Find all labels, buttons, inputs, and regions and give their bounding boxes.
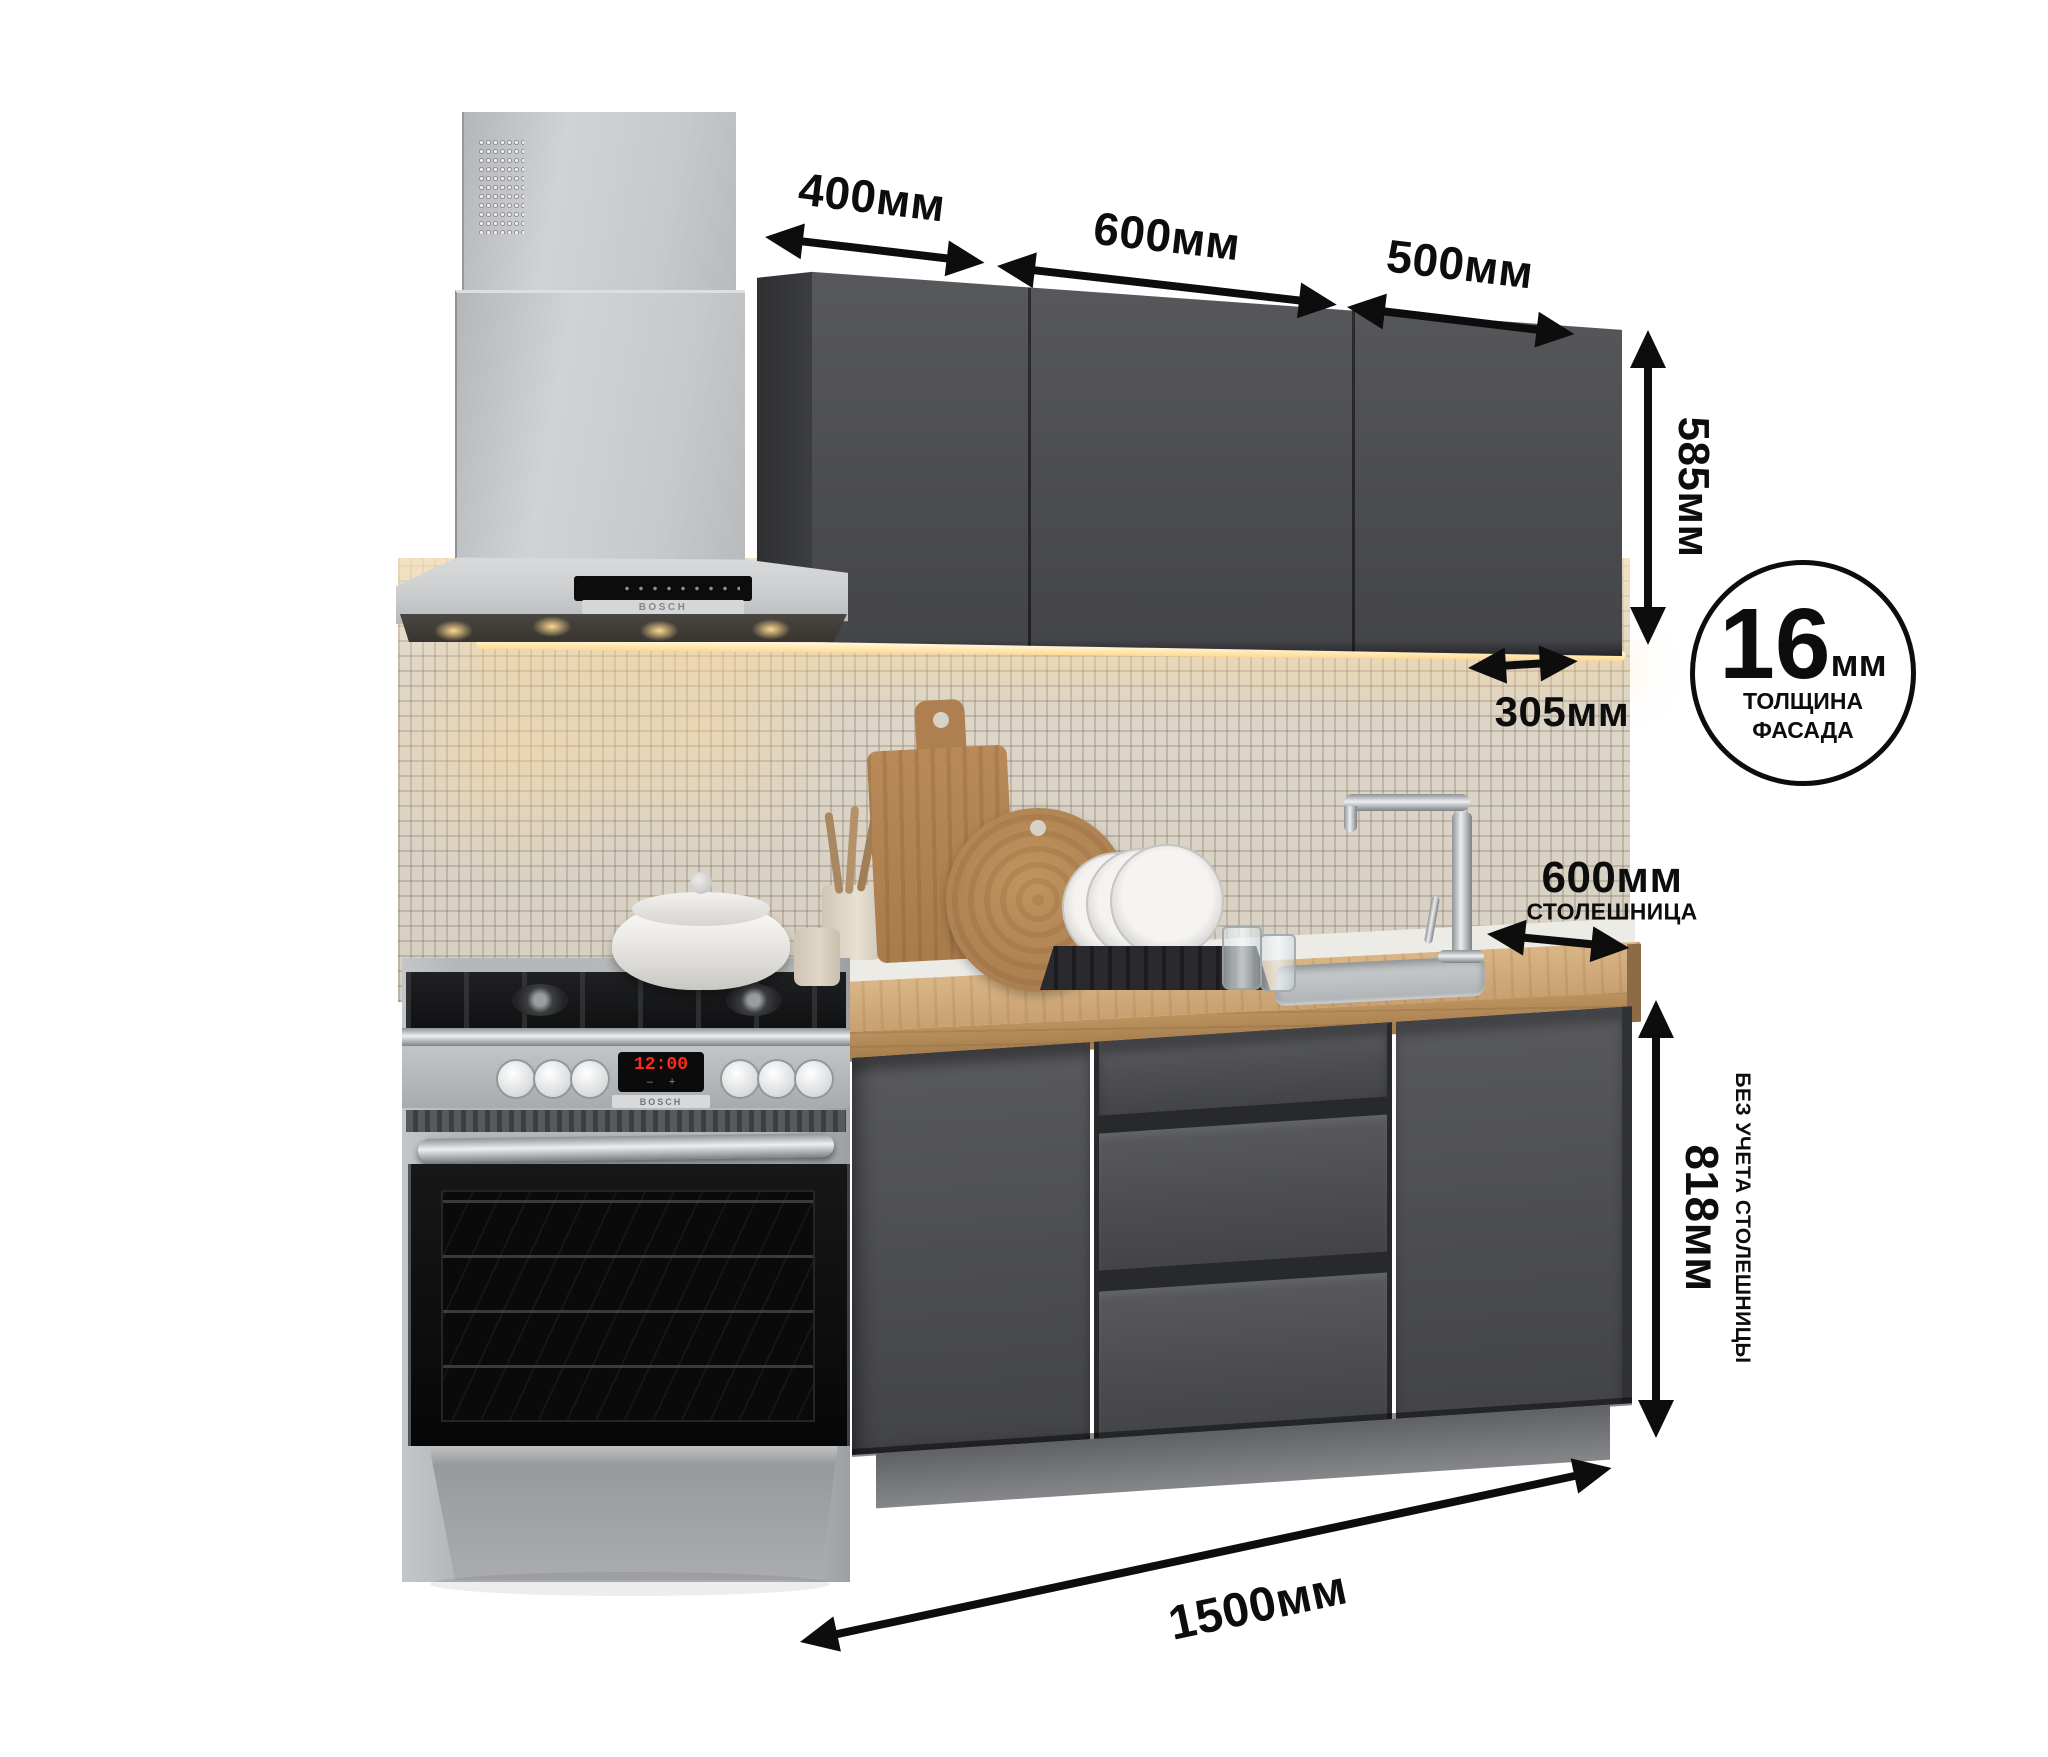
label-counter-depth-caption: СТОЛЕШНИЦА	[1527, 899, 1698, 926]
drawer-1	[1099, 1022, 1387, 1115]
facade-thickness-badge: 16 мм ТОЛЩИНА ФАСАДА	[1690, 560, 1916, 786]
stove-knob-6	[794, 1059, 834, 1099]
hood-chimney-lower	[455, 290, 745, 563]
label-base-height-818: 818мм	[1675, 1144, 1729, 1291]
round-board-hole	[1030, 820, 1046, 836]
stove-brand-label: BOSCH	[640, 1097, 683, 1107]
stove-display: 12:00 – +	[618, 1052, 704, 1092]
wall-door-seam-2	[1352, 266, 1355, 660]
faucet-spout-tip	[1344, 806, 1357, 832]
stove-brand-bar: BOSCH	[612, 1095, 710, 1108]
stove-knob-1	[496, 1059, 536, 1099]
badge-caption-line2: ФАСАДА	[1752, 716, 1854, 745]
drinking-glass-1	[1222, 926, 1262, 990]
label-counter-depth-600: 600мм	[1541, 853, 1682, 903]
hood-brand-label: BOSCH	[639, 602, 688, 613]
burner-left	[512, 984, 568, 1016]
drawer-3	[1099, 1272, 1387, 1438]
stove-minus-button: –	[647, 1077, 653, 1088]
hood-control-bar	[574, 576, 752, 601]
bowl-lid-knob	[690, 872, 712, 894]
hood-brand-bar: BOSCH	[582, 600, 744, 614]
bowl-lid	[632, 892, 770, 926]
base-door-right	[1396, 1007, 1622, 1419]
stove-knob-3	[570, 1059, 610, 1099]
hood-underside-filters	[400, 614, 847, 642]
badge-caption-line1: ТОЛЩИНА	[1743, 687, 1863, 716]
ceramic-cup	[794, 928, 840, 986]
label-wall-height-585: 585мм	[1668, 416, 1718, 557]
drawer-2	[1099, 1114, 1387, 1270]
faucet-base	[1438, 950, 1484, 963]
base-cabinets	[852, 948, 1632, 1560]
arrow-base-height-818	[1636, 1000, 1676, 1438]
badge-unit: мм	[1831, 648, 1887, 680]
badge-value: 16	[1719, 602, 1830, 687]
stove-base-drawer	[412, 1446, 842, 1580]
burner-right	[726, 984, 782, 1016]
oven-vent-strip	[406, 1110, 846, 1132]
stove-clock: 12:00	[634, 1056, 688, 1074]
label-total-width-1500: 1500мм	[1164, 1560, 1352, 1651]
base-door-left	[852, 1042, 1090, 1455]
hood-control-buttons	[620, 585, 740, 592]
base-side-right	[1622, 1006, 1632, 1404]
faucet-riser	[1452, 812, 1472, 962]
stove-plus-button: +	[669, 1077, 675, 1088]
label-wall-width-600: 600мм	[1091, 201, 1243, 271]
label-wall-width-400: 400мм	[796, 162, 949, 233]
label-wall-depth-305: 305мм	[1495, 688, 1630, 736]
oven-door	[408, 1164, 850, 1446]
stove-knob-4	[720, 1059, 760, 1099]
product-dimension-diagram: BOSCH	[0, 0, 2048, 1757]
faucet-spout-arm	[1344, 794, 1470, 811]
base-drawer-unit	[1094, 1022, 1392, 1439]
stove-knob-2	[533, 1059, 573, 1099]
hood-vent-grille	[478, 138, 524, 234]
floor-shadow	[430, 1572, 830, 1596]
oven-window	[441, 1190, 815, 1422]
stove-front-lip	[402, 1028, 850, 1046]
drinking-glass-2	[1260, 934, 1296, 992]
label-base-height-caption: БЕЗ УЧЕТА СТОЛЕШНИЦЫ	[1730, 1072, 1754, 1363]
plate-3	[1110, 844, 1224, 958]
wall-door-seam-1	[1028, 266, 1031, 660]
label-wall-width-500: 500мм	[1384, 228, 1537, 299]
arrow-wall-height-585	[1628, 330, 1668, 645]
stove-control-panel: 12:00 – + BOSCH	[402, 1046, 850, 1108]
cutting-board-handle-hole	[933, 712, 949, 728]
stove-knob-5	[757, 1059, 797, 1099]
arrow-wall-width-400	[763, 217, 987, 283]
